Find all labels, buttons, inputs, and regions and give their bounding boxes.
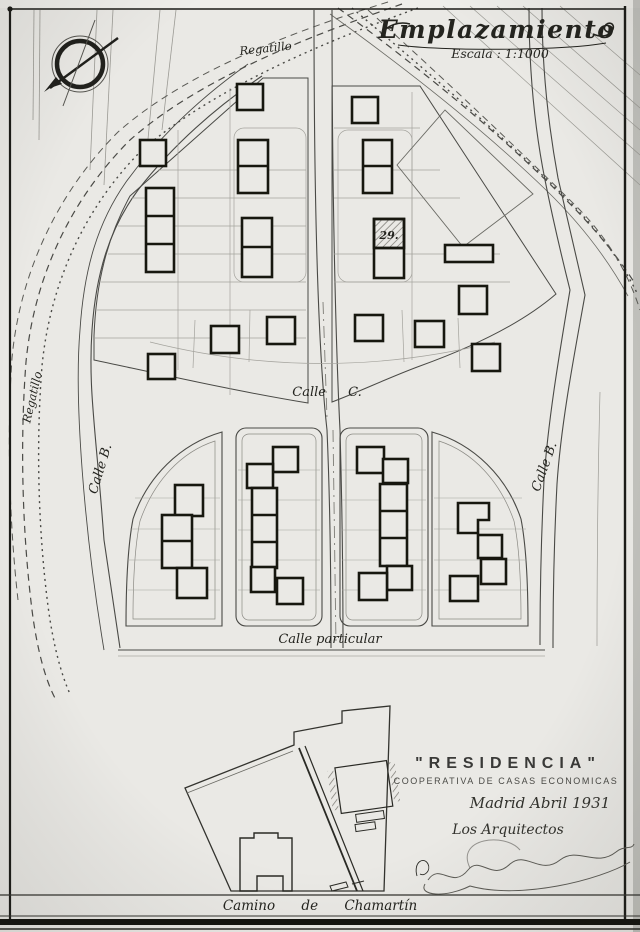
site-plan-drawing: 29. <box>0 0 640 932</box>
scanned-site-plan: 29. <box>0 0 640 932</box>
scan-vignette <box>0 0 640 932</box>
